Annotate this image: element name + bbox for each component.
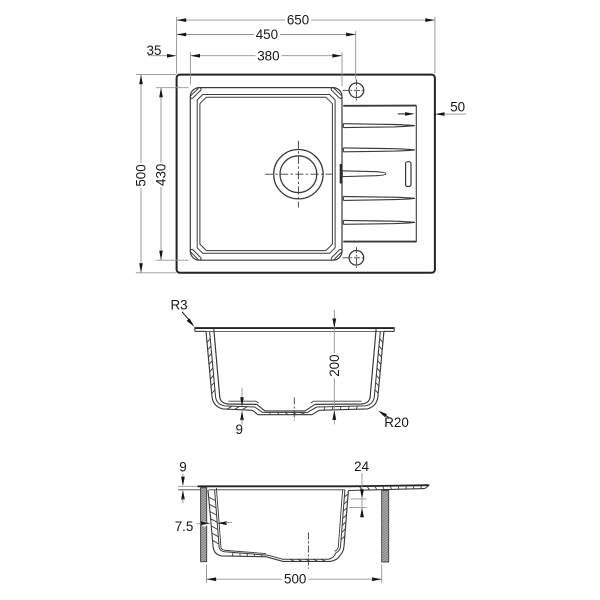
svg-text:430: 430 (154, 164, 169, 186)
svg-text:9: 9 (179, 459, 186, 474)
svg-text:R3: R3 (170, 298, 187, 313)
svg-text:500: 500 (134, 164, 149, 186)
svg-text:50: 50 (450, 99, 465, 114)
svg-text:35: 35 (147, 43, 162, 58)
svg-text:650: 650 (287, 12, 309, 27)
svg-text:9: 9 (235, 422, 242, 437)
svg-text:450: 450 (256, 27, 278, 42)
svg-text:500: 500 (284, 572, 306, 587)
svg-text:380: 380 (257, 48, 279, 63)
svg-text:7.5: 7.5 (175, 519, 194, 534)
svg-text:200: 200 (327, 354, 342, 376)
svg-text:24: 24 (354, 459, 369, 474)
